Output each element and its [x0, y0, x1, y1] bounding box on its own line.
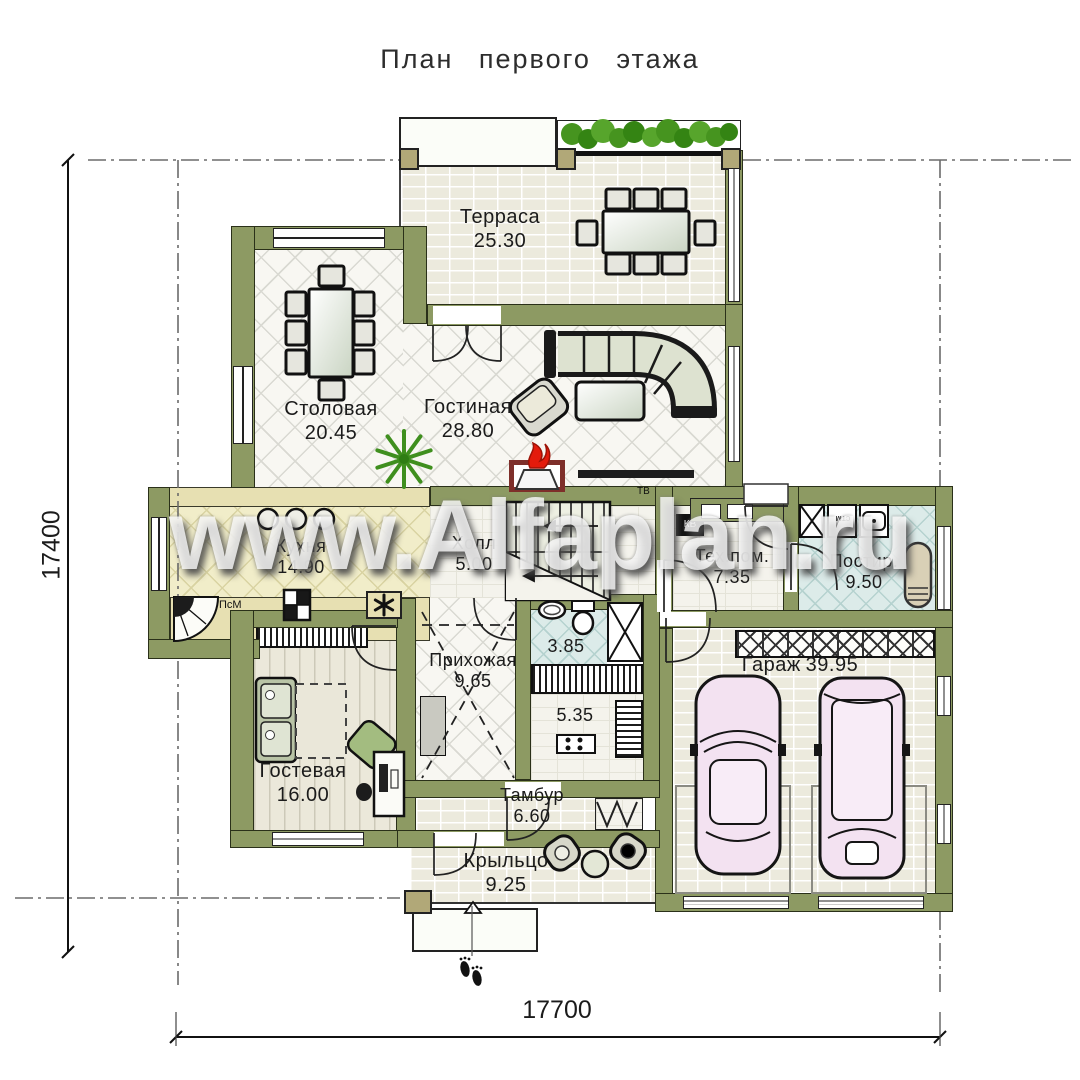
room-label-hall: Холл 5.00: [452, 533, 496, 575]
room-label-kitchen: Кухня 14.90: [276, 536, 327, 578]
room-label-terrace: Терраса 25.30: [460, 206, 540, 253]
room-label-tech: Тех.пом. 7.35: [695, 546, 770, 588]
stairs: [506, 502, 610, 600]
room-label-vestibule: Тамбур 6.60: [500, 785, 564, 827]
footprints-icon: [459, 957, 483, 987]
room-label-garage: Гараж 39.95: [742, 654, 858, 678]
coffee-table: [576, 382, 644, 420]
entrance-marker: [465, 902, 481, 956]
fireplace-flame: [516, 443, 558, 489]
dimension-width: 17700: [522, 996, 592, 1025]
dimension-height: 17400: [38, 510, 67, 580]
room-label-wardrobe: 5.35: [556, 705, 593, 726]
kitchen-stools: [258, 509, 334, 529]
ironing-board: [905, 543, 931, 607]
bench-dots: [566, 738, 583, 751]
room-label-living: Гостиная 28.80: [424, 396, 512, 443]
planter-bushes: [561, 119, 738, 149]
dining-set: [286, 266, 374, 400]
car-1: [676, 676, 790, 893]
page-title: План первого этажа: [380, 44, 699, 75]
hood-icon: [375, 595, 392, 615]
room-label-porch: Крыльцо 9.25: [463, 850, 548, 897]
room-label-guest: Гостевая 16.00: [259, 760, 346, 807]
room-label-bath: 3.85: [547, 636, 584, 657]
plan-linework: [0, 0, 1080, 1080]
porch-furniture: [540, 830, 649, 877]
terrace-dining-set: [577, 189, 715, 274]
floor-plan-canvas: План первого этажа: [0, 0, 1080, 1080]
room-label-laundry: Постир. 9.50: [830, 551, 899, 593]
plant-icon: [377, 431, 430, 487]
room-label-dining: Столовая 20.45: [284, 398, 377, 445]
corner-sink: [174, 597, 218, 641]
car-2: [812, 678, 926, 893]
armchair: [506, 375, 571, 439]
room-label-entry: Прихожая 9.65: [429, 650, 516, 692]
entry-dashed-marks: [422, 612, 514, 778]
stove: [284, 590, 310, 620]
